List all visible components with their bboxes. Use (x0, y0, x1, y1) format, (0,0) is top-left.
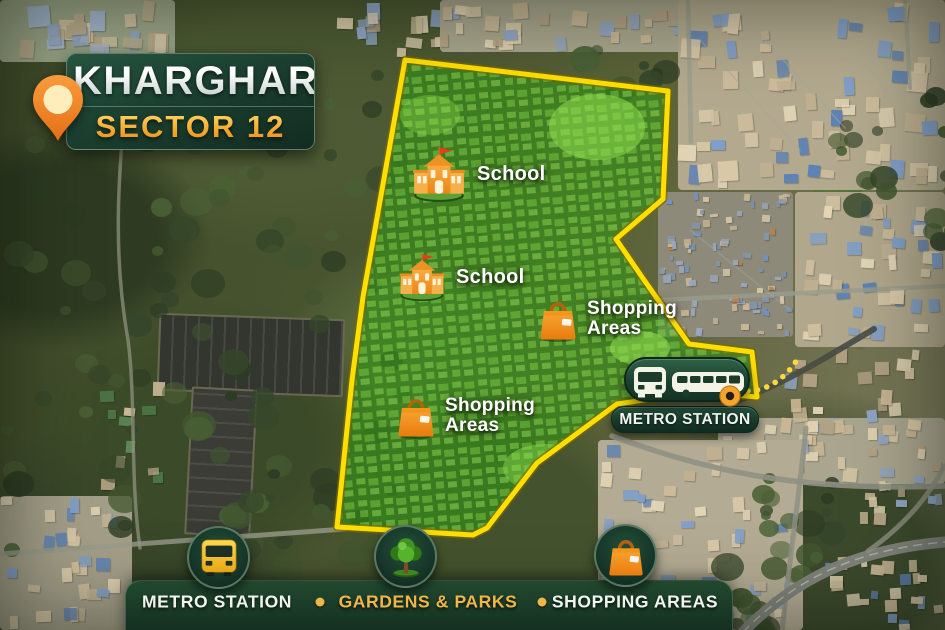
shopping-marker-label: Shopping Areas (445, 396, 541, 436)
shopping-marker-1[interactable]: Shopping Areas (538, 296, 683, 342)
legend-item-gardens (374, 525, 437, 588)
legend-dot-separator (538, 598, 547, 607)
location-pin-icon (30, 73, 86, 145)
title-city: KHARGHAR (67, 54, 314, 106)
legend-dot-separator (316, 598, 325, 607)
bus-front-icon (634, 367, 666, 398)
school-marker-label: School (477, 164, 545, 185)
legend-item-metro (187, 526, 250, 589)
bus-side-icon (672, 372, 744, 406)
legend-label-gardens: GARDENS & PARKS (339, 592, 518, 613)
legend-label-shopping: SHOPPING AREAS (552, 592, 718, 613)
shopping-bag-icon (538, 296, 578, 342)
legend-item-shopping (594, 524, 657, 587)
metro-pill (624, 357, 750, 402)
bus-icon (198, 537, 240, 579)
school-icon (410, 145, 468, 203)
shopping-bag-icon (396, 393, 436, 439)
legend-label-metro: METRO STATION (142, 592, 292, 613)
shopping-marker-label: Shopping Areas (587, 299, 683, 339)
metro-marker[interactable]: METRO STATION (611, 357, 761, 433)
title-card: KHARGHAR SECTOR 12 (66, 53, 315, 150)
school-marker-1[interactable]: School (410, 145, 545, 203)
school-marker-2[interactable]: School (397, 252, 524, 302)
bag-icon (607, 534, 645, 578)
school-marker-label: School (456, 267, 524, 288)
bus-icons (630, 362, 750, 414)
shopping-marker-2[interactable]: Shopping Areas (396, 393, 541, 439)
legend: METRO STATION GARDENS & PARKS SHOPPING A… (125, 524, 733, 630)
school-icon (397, 252, 447, 302)
title-sector: SECTOR 12 (67, 106, 314, 149)
tree-icon (384, 535, 428, 579)
map-canvas: School School (0, 0, 945, 630)
